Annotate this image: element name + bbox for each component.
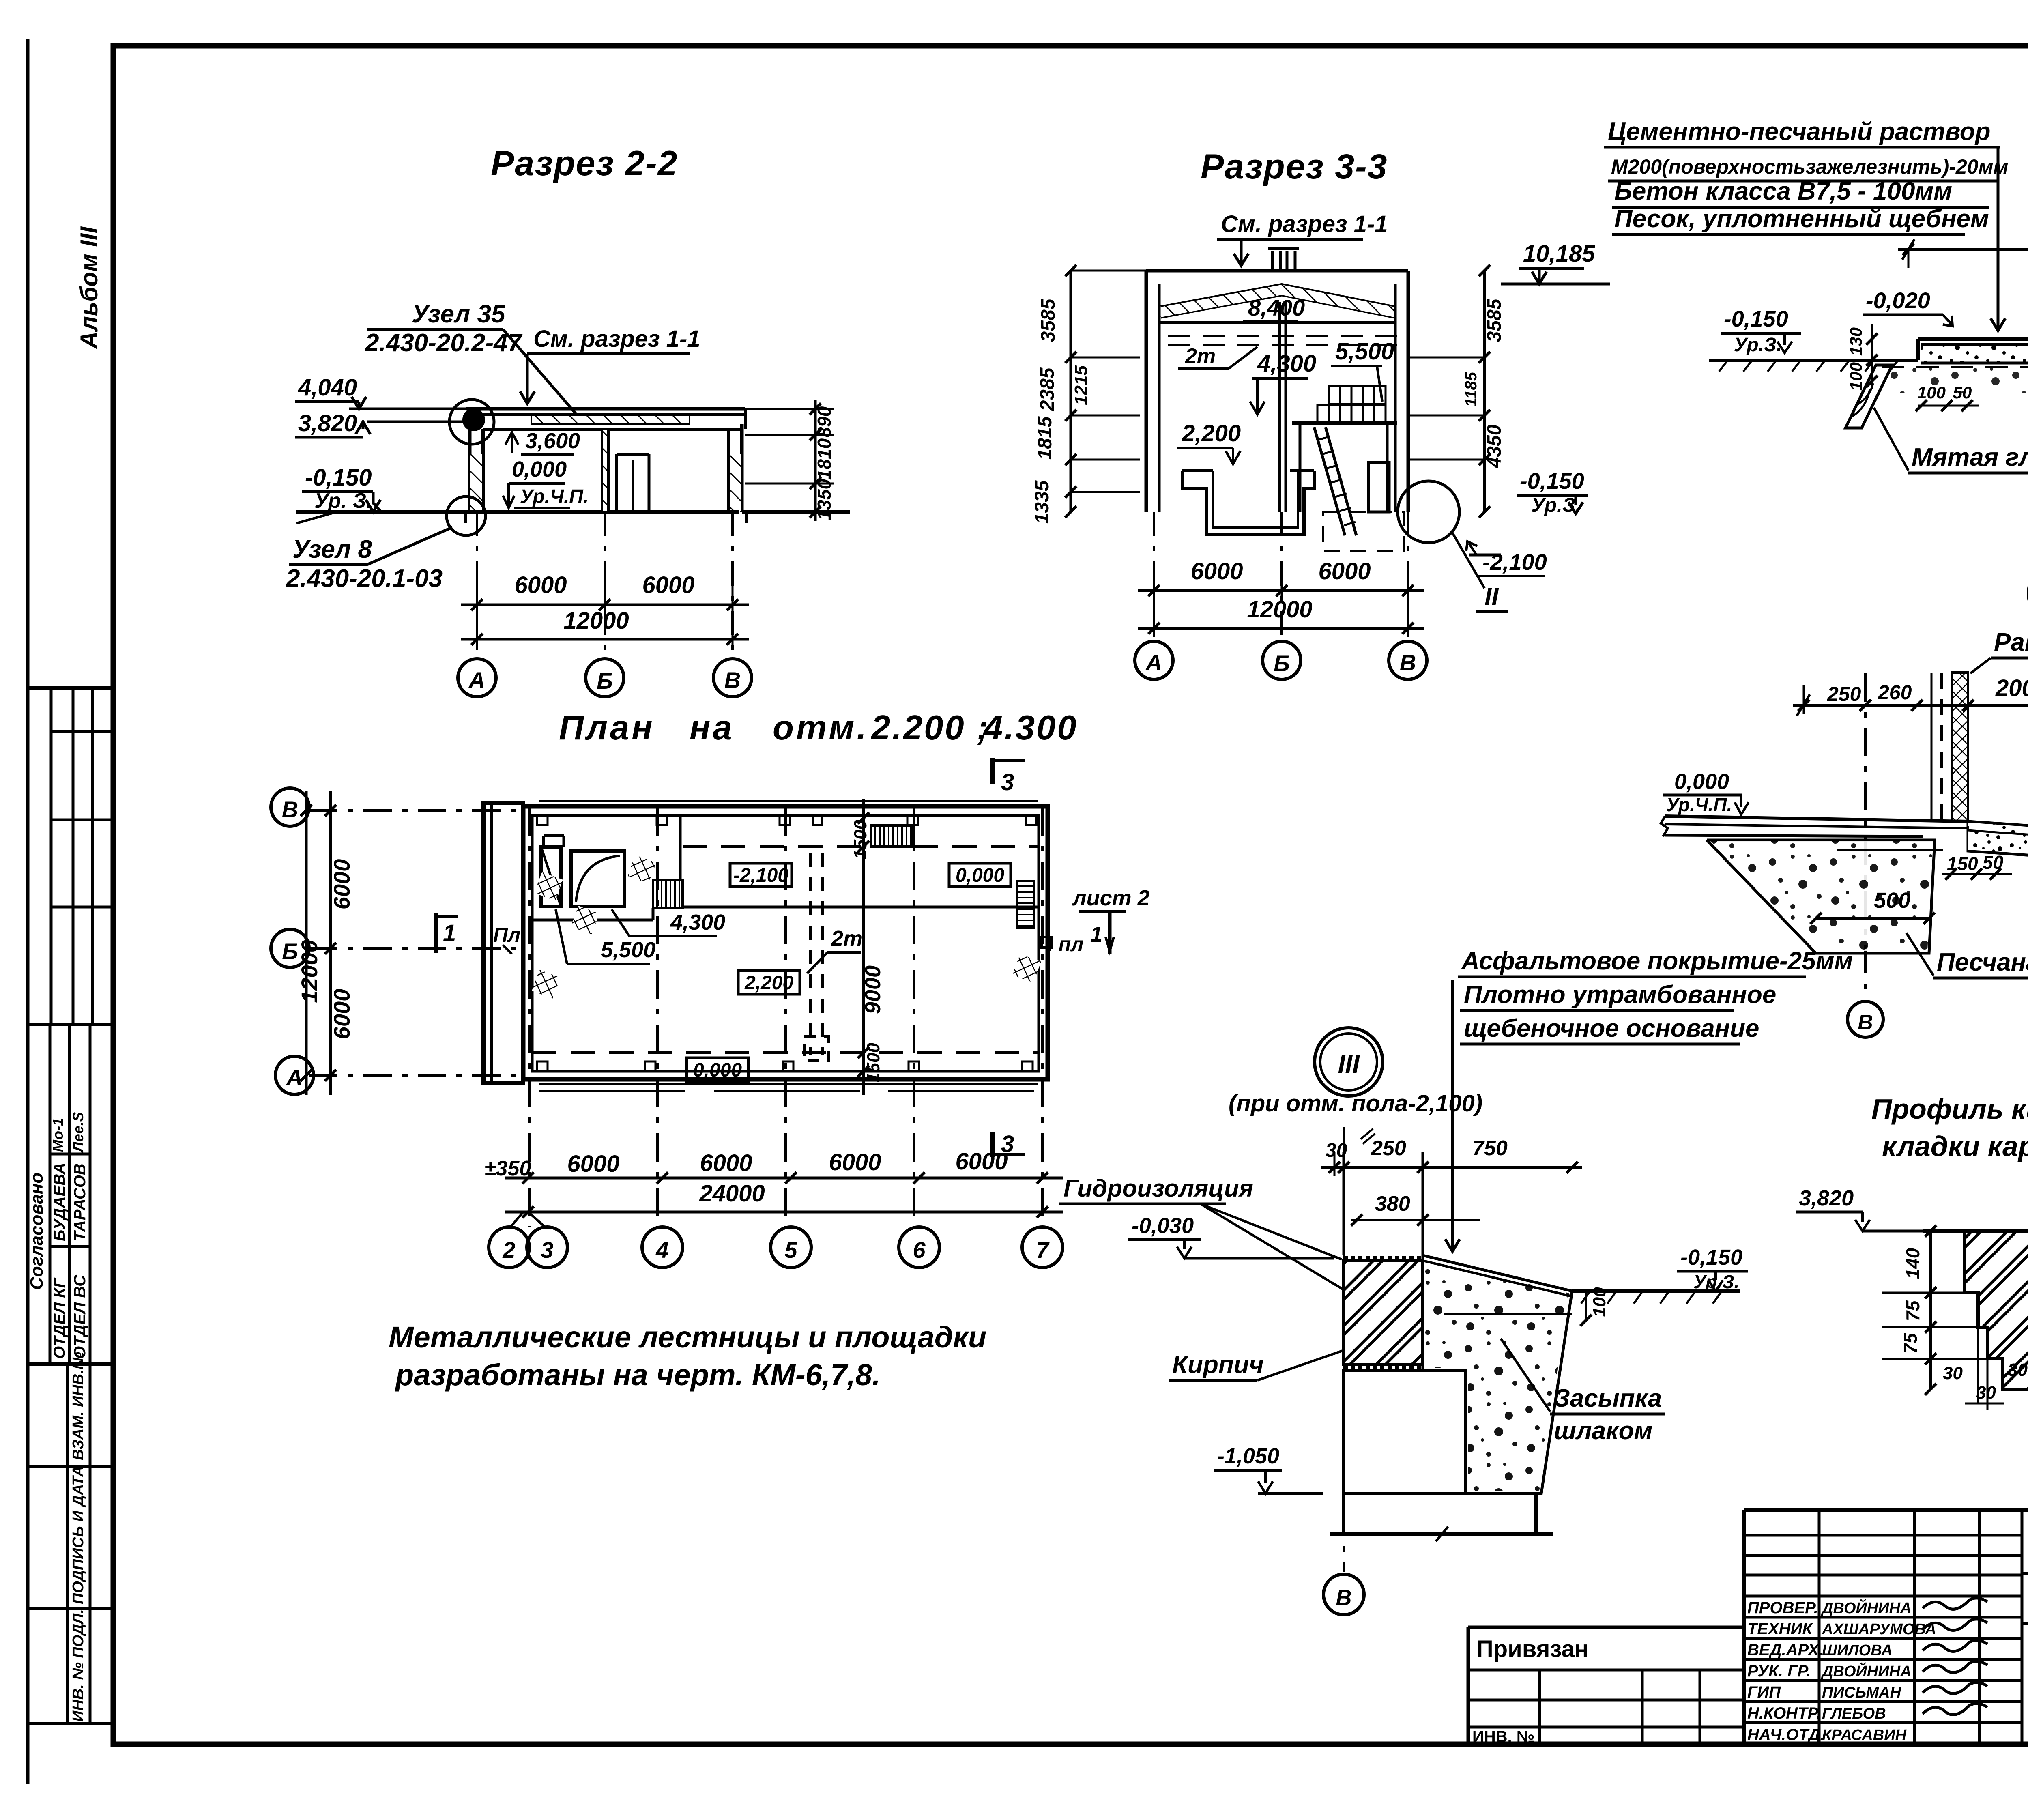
svg-text:щебеночное основание: щебеночное основание (1464, 1014, 1759, 1042)
svg-text:4,300: 4,300 (1257, 350, 1316, 377)
svg-text:4.300: 4.300 (983, 709, 1078, 747)
svg-text:Б: Б (597, 668, 613, 694)
svg-text:3: 3 (541, 1237, 553, 1263)
svg-text:Песок, уплотненный щебнем: Песок, уплотненный щебнем (1614, 205, 1989, 233)
svg-text:380: 380 (1375, 1192, 1410, 1216)
svg-text:1350: 1350 (814, 479, 835, 520)
svg-text:См. разрез 1-1: См. разрез 1-1 (1221, 211, 1388, 237)
svg-text:2385: 2385 (1037, 367, 1058, 411)
svg-text:12000: 12000 (563, 608, 629, 634)
svg-text:Профиль кирпичной: Профиль кирпичной (1871, 1093, 2028, 1125)
svg-text:150: 150 (1947, 853, 1978, 874)
svg-text:Гидроизоляция: Гидроизоляция (1063, 1175, 1253, 1202)
svg-text:6: 6 (913, 1237, 926, 1263)
svg-text:Засыпка: Засыпка (1554, 1384, 1662, 1412)
svg-text:Ур.З.: Ур.З. (1531, 494, 1581, 516)
svg-text:Н.КОНТР.: Н.КОНТР. (1747, 1704, 1821, 1722)
svg-text:Мятая глина: Мятая глина (1912, 443, 2028, 471)
svg-text:Ур.З.: Ур.З. (1734, 334, 1782, 356)
svg-text:1: 1 (443, 920, 456, 946)
svg-text:6000: 6000 (642, 572, 694, 598)
svg-text:ТЕХНИК: ТЕХНИК (1747, 1620, 1813, 1638)
svg-text:4,300: 4,300 (670, 910, 725, 935)
svg-text:ПОДПИСЬ И ДАТА: ПОДПИСЬ И ДАТА (70, 1465, 87, 1604)
svg-text:6000: 6000 (1190, 558, 1243, 584)
svg-text:III: III (1338, 1050, 1360, 1079)
svg-text:-0,020: -0,020 (1866, 288, 1930, 313)
svg-text:6000: 6000 (1318, 558, 1371, 584)
svg-text:±350: ±350 (484, 1157, 531, 1180)
svg-text:2т: 2т (831, 926, 863, 951)
svg-text:Металлические лестницы и пл: Металлические лестницы и площадки (389, 1320, 986, 1354)
svg-text:3: 3 (1001, 769, 1014, 795)
svg-text:3585: 3585 (1484, 298, 1505, 342)
svg-text:500: 500 (1874, 888, 1910, 913)
svg-text:4,040: 4,040 (298, 374, 357, 401)
svg-text:В: В (1858, 1011, 1873, 1034)
svg-text:М200(поверхностьзажелезнить)-2: М200(поверхностьзажелезнить)-20мм (1611, 155, 2008, 178)
svg-text:ОТДЕЛ ВС: ОТДЕЛ ВС (71, 1274, 89, 1359)
svg-text:II: II (1484, 583, 1499, 611)
svg-text:В: В (1336, 1586, 1352, 1610)
svg-text:3585: 3585 (1038, 298, 1059, 342)
svg-text:75: 75 (1900, 1332, 1921, 1354)
svg-text:Асфальтовое покрытие-25мм: Асфальтовое покрытие-25мм (1461, 947, 1853, 975)
svg-text:План: План (559, 709, 655, 747)
svg-text:100: 100 (1917, 383, 1946, 402)
svg-text:1: 1 (1090, 922, 1102, 947)
svg-text:ВЕД.АРХ.: ВЕД.АРХ. (1747, 1641, 1823, 1659)
svg-text:ШИЛОВА: ШИЛОВА (1822, 1642, 1893, 1659)
svg-text:В: В (282, 797, 298, 822)
svg-text:2,200: 2,200 (744, 972, 793, 994)
svg-text:4: 4 (655, 1237, 668, 1263)
svg-text:24000: 24000 (699, 1180, 765, 1207)
svg-text:Б: Б (1274, 651, 1290, 676)
svg-text:ГИП: ГИП (1747, 1683, 1781, 1701)
svg-text:3,820: 3,820 (1799, 1186, 1854, 1210)
svg-text:7: 7 (1036, 1237, 1050, 1263)
svg-text:ТАРАСОВ: ТАРАСОВ (71, 1163, 89, 1241)
svg-text:Разрез 2-2: Разрез 2-2 (491, 144, 678, 183)
svg-text:Альбом III: Альбом III (75, 226, 103, 350)
svg-text:РУК. ГР.: РУК. ГР. (1747, 1662, 1811, 1680)
svg-text:6000: 6000 (329, 989, 354, 1040)
svg-text:890: 890 (814, 406, 835, 437)
svg-text:шлаком: шлаком (1554, 1417, 1652, 1445)
svg-text:ДВОЙНИНА: ДВОЙНИНА (1821, 1662, 1912, 1680)
svg-text:2000: 2000 (1995, 675, 2028, 701)
svg-text:5,500: 5,500 (601, 938, 655, 962)
svg-text:кладки карниза: кладки карниза (1882, 1130, 2028, 1162)
svg-text:ПРОВЕР.: ПРОВЕР. (1747, 1599, 1818, 1617)
svg-text:на: на (690, 709, 735, 747)
svg-text:4350: 4350 (1484, 424, 1505, 468)
svg-text:6000: 6000 (514, 572, 567, 598)
svg-text:-2,100: -2,100 (1482, 549, 1547, 575)
svg-text:260: 260 (1878, 681, 1912, 704)
svg-text:Узел 35: Узел 35 (412, 300, 506, 328)
svg-text:-2,100: -2,100 (733, 865, 788, 886)
svg-text:Пл: Пл (493, 924, 520, 946)
svg-text:ГЛЕБОВ: ГЛЕБОВ (1822, 1705, 1886, 1722)
svg-text:1815: 1815 (1034, 416, 1056, 460)
svg-text:Разрез 3-3: Разрез 3-3 (1201, 147, 1388, 186)
svg-text:Узел 8: Узел 8 (292, 535, 372, 563)
svg-text:-1,050: -1,050 (1217, 1444, 1279, 1468)
svg-text:1500: 1500 (851, 820, 870, 860)
svg-text:Б: Б (282, 939, 298, 964)
svg-text:Цементно-песчаный раствор: Цементно-песчаный раствор (1608, 118, 1991, 146)
svg-text:1810: 1810 (814, 438, 835, 480)
svg-text:2.430-20.2-47: 2.430-20.2-47 (365, 329, 523, 357)
svg-text:Ур.Ч.П.: Ур.Ч.П. (520, 486, 589, 507)
svg-text:1215: 1215 (1071, 365, 1091, 405)
svg-text:6000: 6000 (567, 1151, 619, 1177)
svg-text:1335: 1335 (1031, 480, 1053, 524)
svg-text:Песчаная подушка: Песчаная подушка (1937, 948, 2028, 976)
svg-text:30: 30 (1943, 1363, 1963, 1383)
svg-text:ДВОЙНИНА: ДВОЙНИНА (1821, 1599, 1912, 1617)
svg-text:2.430-20.1-03: 2.430-20.1-03 (286, 565, 443, 593)
svg-text:10,185: 10,185 (1523, 241, 1595, 267)
svg-text:ВЗАМ. ИНВ.№: ВЗАМ. ИНВ.№ (70, 1352, 87, 1460)
svg-text:-0,030: -0,030 (1132, 1214, 1194, 1238)
svg-text:5,500: 5,500 (1335, 338, 1394, 365)
svg-text:БУДАЕВА: БУДАЕВА (51, 1162, 69, 1241)
svg-text:-0,150: -0,150 (1680, 1245, 1742, 1270)
svg-text:Ур. З.: Ур. З. (314, 489, 372, 513)
svg-text:3: 3 (1001, 1131, 1014, 1157)
svg-text:А: А (286, 1065, 303, 1090)
svg-text:250: 250 (1827, 683, 1861, 705)
svg-text:12000: 12000 (296, 940, 322, 1003)
svg-text:-0,150: -0,150 (305, 464, 372, 491)
svg-text:2т: 2т (1185, 344, 1216, 368)
svg-text:ИНВ. №: ИНВ. № (1472, 1728, 1534, 1746)
svg-text:6000: 6000 (829, 1149, 881, 1175)
svg-text:0,000: 0,000 (693, 1059, 742, 1081)
svg-text:50: 50 (1953, 383, 1972, 402)
svg-text:-0,150: -0,150 (1724, 306, 1788, 331)
svg-text:1185: 1185 (1462, 372, 1480, 407)
svg-text:5: 5 (784, 1237, 797, 1263)
svg-text:2,200: 2,200 (1182, 420, 1241, 447)
svg-text:2.200 ;: 2.200 ; (870, 709, 990, 747)
svg-text:1500: 1500 (864, 1043, 883, 1083)
svg-text:В: В (724, 667, 741, 693)
svg-text:-0,150: -0,150 (1520, 468, 1584, 494)
svg-text:250: 250 (1371, 1137, 1406, 1160)
svg-text:Бетон класса В7,5 - 100мм: Бетон класса В7,5 - 100мм (1614, 177, 1952, 205)
svg-text:0,000: 0,000 (956, 865, 1004, 886)
svg-text:100: 100 (1846, 362, 1865, 391)
svg-text:0,000: 0,000 (1674, 769, 1729, 794)
svg-text:Ур.Ч.П.: Ур.Ч.П. (1666, 794, 1732, 815)
svg-text:В: В (1400, 650, 1416, 675)
svg-text:ОТДЕЛ КГ: ОТДЕЛ КГ (51, 1277, 69, 1359)
svg-text:Мо-1: Мо-1 (49, 1118, 66, 1152)
svg-text:(при отм. пола-2,100): (при отм. пола-2,100) (1229, 1090, 1482, 1117)
svg-text:А: А (468, 667, 485, 693)
svg-text:Привязан: Привязан (1476, 1636, 1589, 1662)
svg-text:12000: 12000 (1247, 596, 1312, 623)
svg-text:100: 100 (1590, 1287, 1609, 1317)
svg-text:2: 2 (502, 1237, 515, 1263)
svg-text:КРАСАВИН: КРАСАВИН (1822, 1727, 1907, 1744)
svg-text:Плотно утрамбованное: Плотно утрамбованное (1464, 981, 1776, 1009)
svg-text:750: 750 (1472, 1137, 1508, 1160)
svg-text:ПИСЬМАН: ПИСЬМАН (1822, 1684, 1902, 1701)
svg-text:0,000: 0,000 (512, 457, 567, 481)
svg-text:Согласовано: Согласовано (27, 1173, 47, 1290)
svg-text:АХШАРУМОВА: АХШАРУМОВА (1822, 1621, 1936, 1638)
svg-text:6000: 6000 (700, 1150, 752, 1176)
svg-text:Рама ворот: Рама ворот (1994, 628, 2028, 656)
svg-text:3,820: 3,820 (298, 410, 357, 436)
svg-text:8,400: 8,400 (1248, 295, 1305, 320)
svg-text:6000: 6000 (329, 859, 354, 910)
svg-text:3,600: 3,600 (525, 429, 580, 453)
svg-text:9000: 9000 (861, 965, 885, 1014)
svg-text:75: 75 (1902, 1300, 1923, 1321)
svg-text:разработаны на черт. КМ-6,: разработаны на черт. КМ-6,7,8. (395, 1358, 881, 1392)
svg-text:Кирпич: Кирпич (1172, 1351, 1264, 1379)
svg-text:НАЧ.ОТД.: НАЧ.ОТД. (1747, 1726, 1825, 1744)
svg-text:50: 50 (1983, 852, 2004, 873)
svg-text:30: 30 (2008, 1360, 2028, 1380)
svg-text:Лее.S: Лее.S (70, 1112, 86, 1153)
svg-text:отм.: отм. (773, 709, 869, 747)
svg-text:130: 130 (1846, 327, 1865, 356)
svg-text:См. разрез 1-1: См. разрез 1-1 (533, 326, 700, 352)
svg-text:ИНВ. № ПОДЛ.: ИНВ. № ПОДЛ. (70, 1609, 87, 1722)
svg-text:лист 2: лист 2 (1072, 886, 1150, 910)
svg-text:6000: 6000 (955, 1148, 1008, 1175)
svg-text:А: А (1145, 650, 1162, 675)
svg-text:140: 140 (1902, 1248, 1923, 1279)
